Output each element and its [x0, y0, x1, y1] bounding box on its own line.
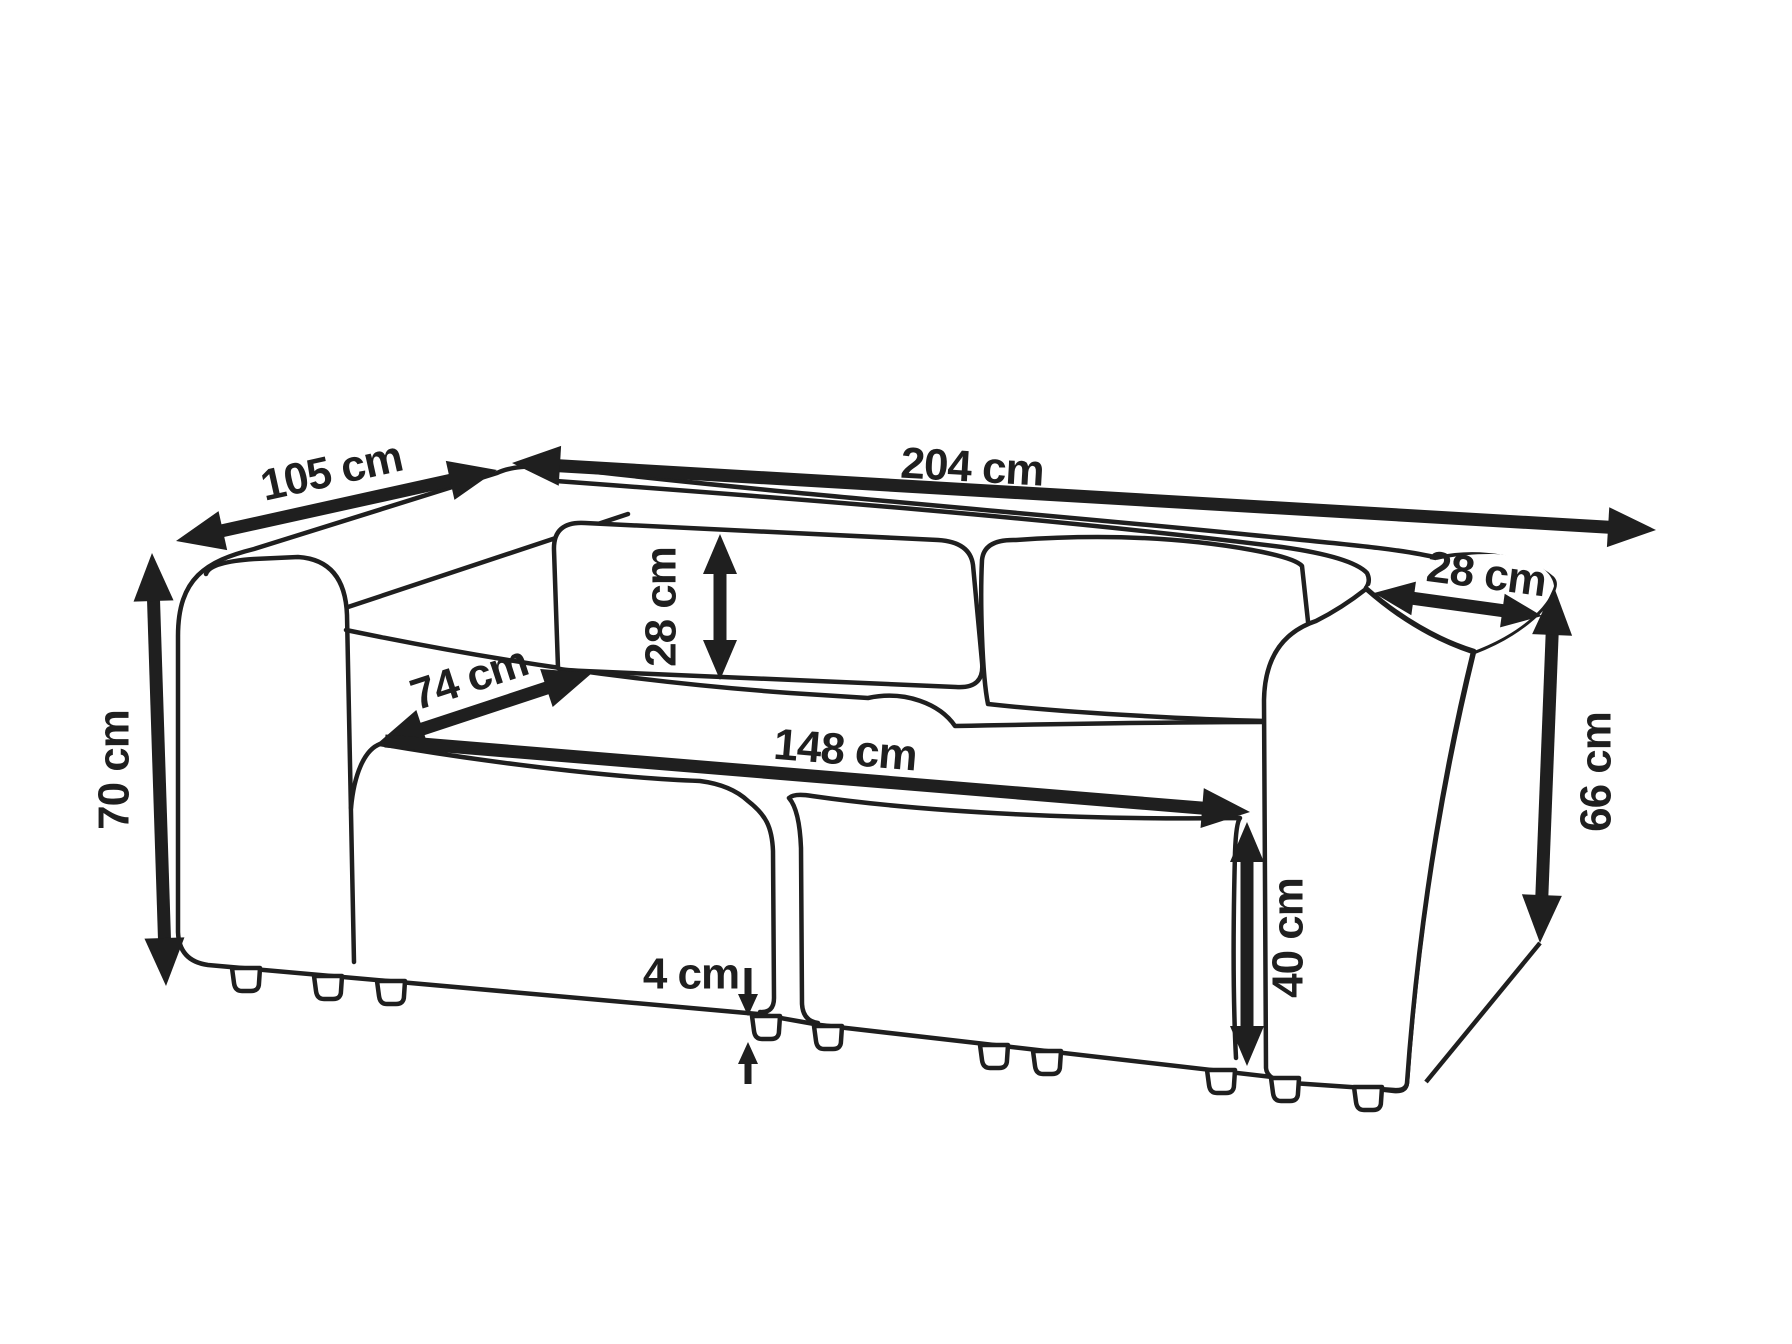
sofa-leg: [1033, 1051, 1061, 1074]
arrowhead-icon: [738, 1042, 758, 1064]
arrowhead-icon: [134, 553, 174, 602]
left-back-cushion: [554, 523, 982, 687]
diagram-page: 105 cm 204 cm 28 cm 28 cm 74 cm 148 cm 7…: [0, 0, 1792, 1344]
sofa-leg: [377, 981, 405, 1004]
sofa-leg: [1271, 1078, 1299, 1101]
arrowhead-icon: [1522, 894, 1562, 943]
dimension-label: 66 cm: [1572, 712, 1621, 832]
dimension-label: 70 cm: [90, 710, 139, 830]
dimension-label: 28 cm: [637, 547, 686, 667]
sofa-leg: [1207, 1070, 1235, 1093]
sofa-leg: [752, 1016, 780, 1039]
dimension-label: 40 cm: [1264, 878, 1313, 998]
dimension-label: 204 cm: [899, 439, 1045, 496]
sofa-illustration: [178, 466, 1555, 1110]
sofa-leg: [980, 1045, 1008, 1068]
dimension-overall-height: 70 cm: [90, 553, 185, 986]
arrowhead-icon: [1607, 507, 1656, 547]
dimension-label: 4 cm: [643, 950, 739, 999]
sofa-leg: [232, 968, 260, 991]
right-armrest-front-face: [1264, 589, 1473, 1090]
arrowhead-icon: [176, 511, 227, 550]
sofa-dimension-diagram: 105 cm 204 cm 28 cm 28 cm 74 cm 148 cm 7…: [0, 0, 1792, 1344]
extension-line: [1426, 943, 1540, 1082]
sofa-leg: [814, 1026, 842, 1049]
sofa-leg: [314, 976, 342, 999]
sofa-leg: [1354, 1087, 1382, 1110]
arrowhead-icon: [144, 937, 184, 986]
